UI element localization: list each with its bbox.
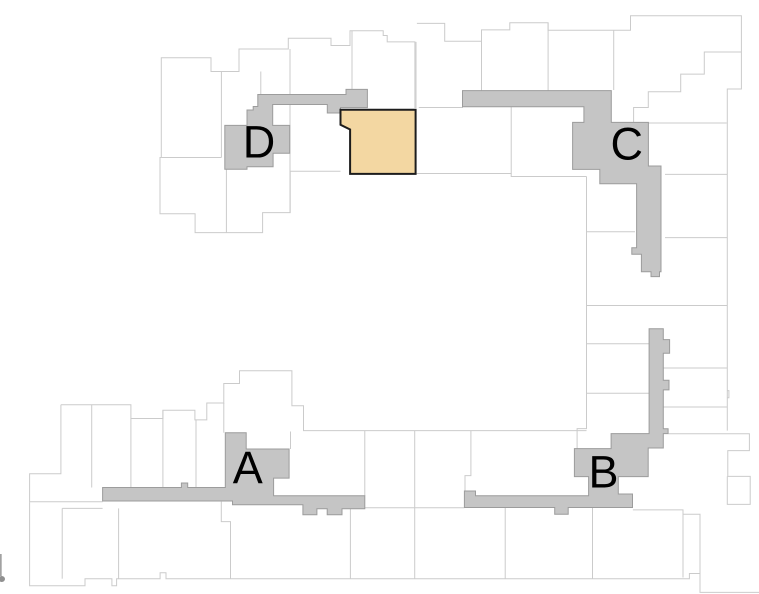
svg-text:A: A <box>233 442 263 493</box>
svg-text:C: C <box>611 119 644 170</box>
svg-text:B: B <box>589 447 619 498</box>
svg-text:D: D <box>243 117 276 168</box>
